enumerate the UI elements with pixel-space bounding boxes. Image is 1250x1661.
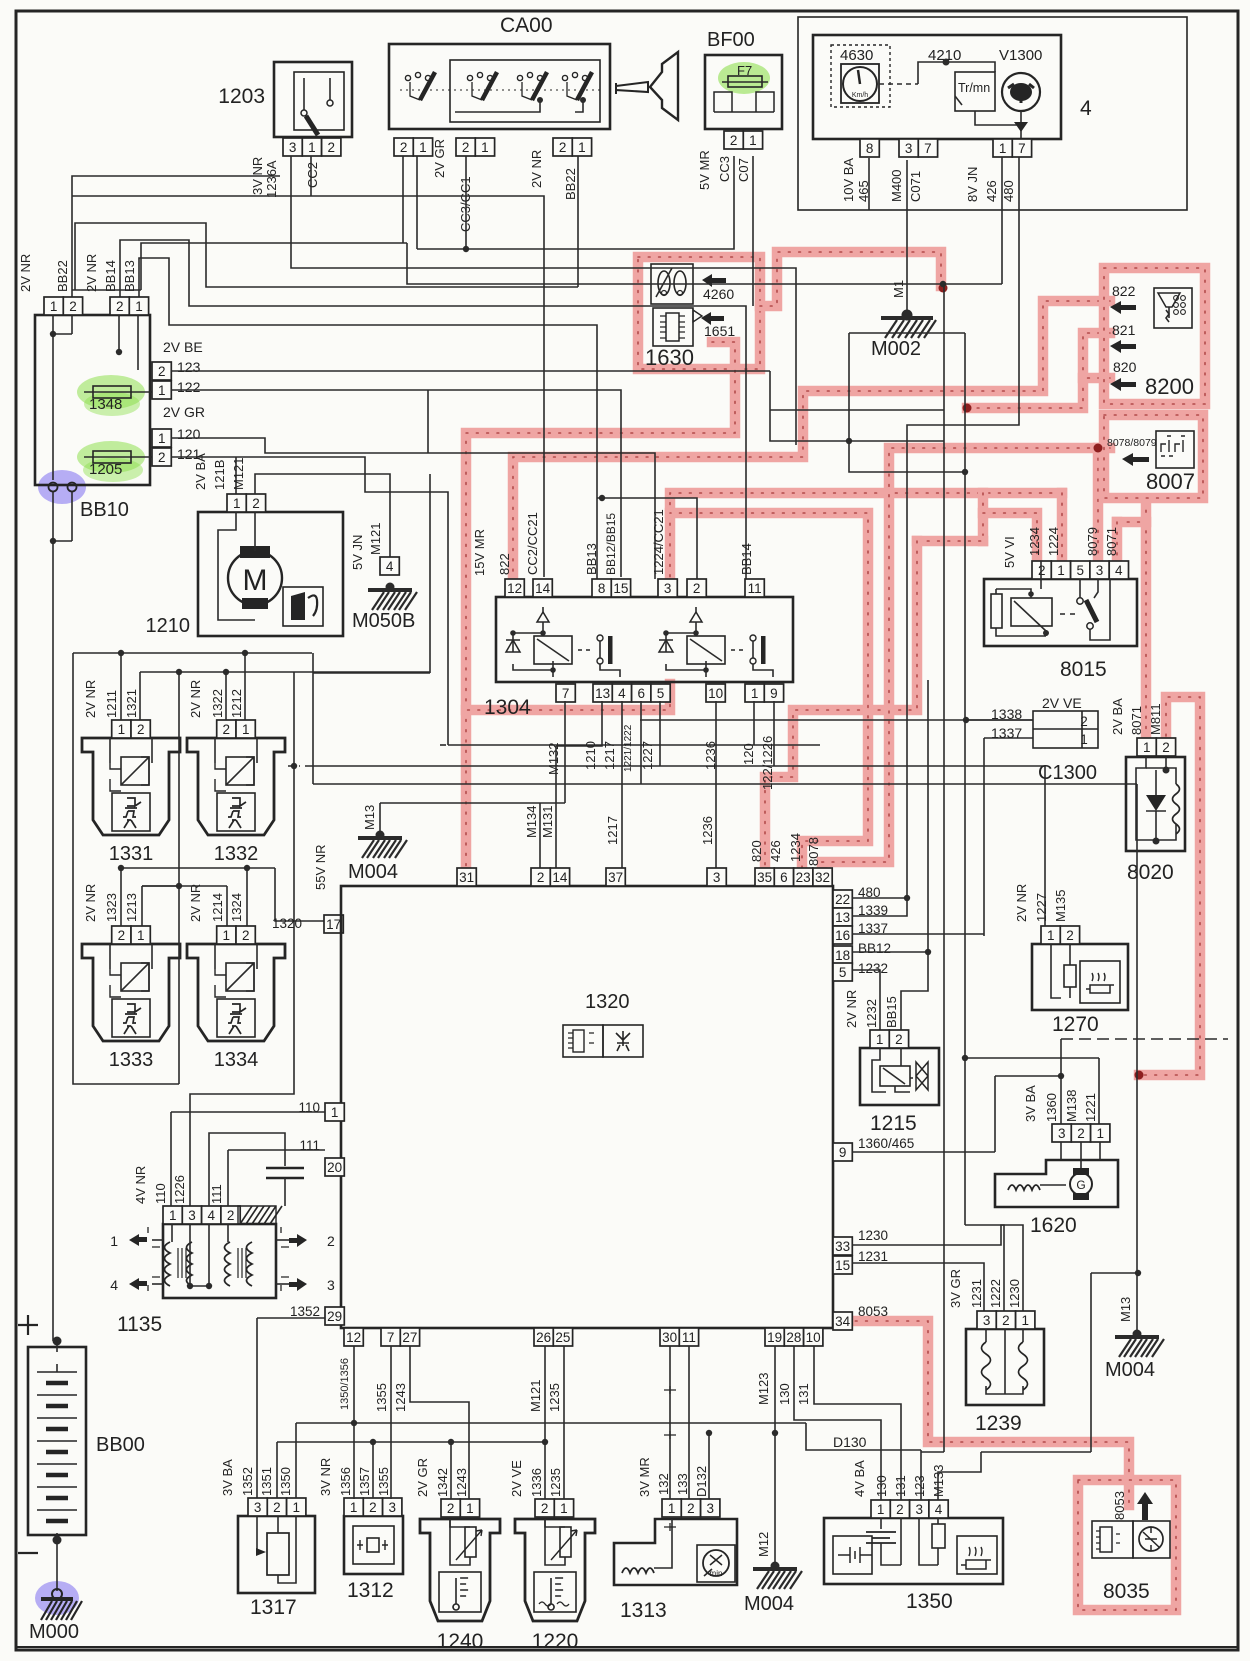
svg-text:132: 132 — [656, 1473, 671, 1495]
svg-text:1651: 1651 — [704, 323, 735, 339]
svg-text:2V GR: 2V GR — [415, 1458, 430, 1497]
svg-text:1: 1 — [419, 140, 427, 155]
svg-text:5V VI: 5V VI — [1002, 536, 1017, 568]
svg-text:2V NR: 2V NR — [844, 990, 859, 1028]
svg-text:BB15: BB15 — [884, 996, 899, 1028]
svg-text:4: 4 — [386, 559, 394, 574]
svg-text:8: 8 — [598, 581, 606, 596]
svg-text:20: 20 — [327, 1160, 342, 1175]
svg-text:1222: 1222 — [988, 1279, 1003, 1308]
svg-text:1212: 1212 — [229, 689, 244, 718]
svg-text:M400: M400 — [889, 169, 904, 202]
svg-text:3: 3 — [1058, 1126, 1066, 1141]
svg-text:1: 1 — [560, 1501, 568, 1516]
svg-text:820: 820 — [1113, 359, 1137, 375]
svg-text:3V MR: 3V MR — [637, 1457, 652, 1497]
svg-text:1312: 1312 — [347, 1579, 394, 1602]
svg-text:1: 1 — [1047, 928, 1055, 943]
svg-text:BF00: BF00 — [707, 29, 755, 51]
svg-text:3: 3 — [915, 1502, 923, 1517]
svg-text:M004: M004 — [348, 861, 398, 883]
svg-text:120: 120 — [741, 743, 756, 765]
svg-text:110: 110 — [153, 1183, 168, 1204]
svg-text:2: 2 — [242, 928, 250, 943]
svg-text:8071: 8071 — [1129, 706, 1144, 735]
svg-text:2: 2 — [137, 722, 145, 737]
svg-text:3: 3 — [706, 1501, 714, 1516]
svg-text:BB14: BB14 — [103, 260, 118, 292]
svg-text:1: 1 — [169, 1208, 177, 1223]
svg-text:BB12/BB15: BB12/BB15 — [604, 513, 618, 575]
svg-text:BB10: BB10 — [80, 499, 129, 521]
svg-text:1217: 1217 — [605, 816, 620, 845]
svg-text:3: 3 — [905, 141, 913, 156]
svg-text:C071: C071 — [908, 171, 923, 202]
svg-text:1: 1 — [137, 928, 145, 943]
svg-text:130: 130 — [777, 1383, 792, 1405]
svg-text:M: M — [243, 564, 268, 597]
svg-text:1360: 1360 — [1044, 1093, 1059, 1122]
svg-text:BB13: BB13 — [122, 260, 137, 292]
svg-text:4: 4 — [618, 686, 626, 701]
svg-text:1215: 1215 — [870, 1112, 917, 1135]
svg-text:1304: 1304 — [484, 696, 531, 719]
svg-text:1350/1356: 1350/1356 — [339, 1358, 351, 1410]
svg-text:2: 2 — [273, 1500, 281, 1515]
svg-text:1210: 1210 — [146, 615, 191, 637]
svg-text:1224: 1224 — [1046, 527, 1061, 556]
svg-text:4: 4 — [208, 1208, 216, 1223]
svg-text:1214: 1214 — [210, 893, 225, 922]
svg-text:2V BA: 2V BA — [1110, 698, 1125, 735]
svg-text:2: 2 — [1162, 740, 1170, 755]
svg-text:1: 1 — [481, 140, 489, 155]
svg-text:1: 1 — [999, 141, 1007, 156]
svg-text:Tr/mn: Tr/mn — [958, 81, 990, 95]
svg-text:1357: 1357 — [357, 1467, 372, 1496]
svg-text:4V BA: 4V BA — [852, 1460, 867, 1497]
svg-text:2V NR: 2V NR — [83, 680, 98, 718]
svg-text:1: 1 — [118, 722, 126, 737]
svg-text:2: 2 — [693, 581, 701, 596]
svg-text:2: 2 — [896, 1502, 904, 1517]
svg-text:32: 32 — [815, 870, 830, 885]
svg-text:1: 1 — [1080, 732, 1088, 747]
svg-text:1342: 1342 — [435, 1468, 450, 1497]
svg-text:BB14: BB14 — [739, 543, 754, 575]
svg-text:1333: 1333 — [109, 1049, 154, 1071]
svg-text:1227: 1227 — [1034, 893, 1049, 922]
svg-text:1320: 1320 — [585, 991, 630, 1013]
svg-text:820: 820 — [749, 840, 764, 862]
svg-text:3: 3 — [254, 1500, 262, 1515]
svg-text:2: 2 — [327, 140, 335, 155]
svg-text:2: 2 — [252, 496, 260, 511]
svg-text:M123: M123 — [756, 1372, 771, 1405]
svg-text:1227: 1227 — [640, 741, 655, 770]
svg-text:1334: 1334 — [214, 1049, 259, 1071]
svg-text:2: 2 — [1077, 1126, 1085, 1141]
svg-text:1321: 1321 — [124, 689, 139, 718]
svg-text:13: 13 — [835, 910, 850, 925]
svg-text:2: 2 — [541, 1501, 549, 1516]
svg-text:15: 15 — [835, 1258, 850, 1273]
svg-text:1221: 1221 — [1083, 1093, 1098, 1122]
svg-text:1: 1 — [1096, 1126, 1104, 1141]
svg-text:2: 2 — [69, 299, 77, 314]
svg-text:1: 1 — [668, 1501, 676, 1516]
svg-text:4: 4 — [1080, 97, 1092, 120]
svg-text:3: 3 — [388, 1500, 396, 1515]
svg-text:123: 123 — [912, 1475, 927, 1497]
svg-text:1313: 1313 — [620, 1599, 667, 1622]
svg-text:8035: 8035 — [1103, 1580, 1150, 1603]
svg-text:M811: M811 — [1148, 703, 1163, 735]
svg-text:1323: 1323 — [104, 893, 119, 922]
svg-text:1: 1 — [331, 1105, 339, 1120]
svg-text:M121: M121 — [368, 522, 383, 555]
svg-text:10: 10 — [806, 1330, 821, 1345]
svg-text:8071: 8071 — [1104, 527, 1119, 556]
svg-text:1213: 1213 — [124, 893, 139, 922]
svg-text:1220: 1220 — [532, 1630, 579, 1653]
svg-text:8079: 8079 — [1085, 527, 1100, 556]
svg-text:1230: 1230 — [1007, 1279, 1022, 1308]
svg-text:4: 4 — [110, 1277, 118, 1293]
svg-text:12: 12 — [507, 581, 522, 596]
svg-text:2: 2 — [687, 1501, 695, 1516]
svg-text:1360/465: 1360/465 — [858, 1136, 914, 1151]
svg-text:2: 2 — [730, 133, 738, 148]
svg-text:2: 2 — [559, 140, 567, 155]
svg-text:1356: 1356 — [338, 1467, 353, 1496]
svg-text:2: 2 — [327, 1233, 335, 1249]
svg-text:8078/8079: 8078/8079 — [1107, 437, 1157, 449]
svg-text:G: G — [1076, 1178, 1085, 1192]
svg-text:33: 33 — [835, 1239, 850, 1254]
svg-text:2: 2 — [537, 870, 545, 885]
svg-text:123: 123 — [177, 359, 201, 375]
svg-text:2: 2 — [1066, 928, 1074, 943]
svg-text:1243: 1243 — [454, 1468, 469, 1497]
svg-text:3: 3 — [327, 1277, 335, 1293]
svg-text:2: 2 — [158, 450, 166, 465]
svg-text:23: 23 — [796, 870, 811, 885]
svg-text:2: 2 — [223, 722, 231, 737]
svg-text:14: 14 — [535, 581, 551, 596]
svg-text:7: 7 — [387, 1330, 395, 1345]
svg-text:1224/CC21: 1224/CC21 — [651, 509, 666, 575]
svg-text:35: 35 — [757, 870, 772, 885]
svg-text:12: 12 — [346, 1330, 361, 1345]
svg-text:BB12: BB12 — [858, 941, 891, 956]
svg-text:2V VE: 2V VE — [1042, 695, 1082, 711]
svg-text:822: 822 — [497, 553, 512, 575]
svg-text:11: 11 — [748, 581, 762, 596]
svg-text:M004: M004 — [1105, 1359, 1155, 1381]
svg-text:8020: 8020 — [1127, 861, 1174, 884]
svg-text:7: 7 — [1018, 141, 1026, 156]
svg-text:1: 1 — [110, 1233, 118, 1249]
svg-text:122/1226: 122/1226 — [760, 736, 775, 790]
svg-text:1: 1 — [50, 299, 58, 314]
svg-text:2V GR: 2V GR — [432, 139, 447, 178]
svg-text:8078: 8078 — [806, 837, 821, 866]
svg-text:19: 19 — [767, 1330, 782, 1345]
svg-text:2: 2 — [462, 140, 470, 155]
svg-text:1630: 1630 — [645, 345, 694, 370]
svg-text:2: 2 — [369, 1500, 377, 1515]
svg-text:CC3: CC3 — [717, 156, 732, 182]
svg-text:8V JN: 8V JN — [965, 167, 980, 202]
svg-text:26: 26 — [536, 1330, 551, 1345]
svg-text:1221/1222: 1221/1222 — [623, 724, 634, 772]
svg-text:M121: M121 — [231, 457, 246, 490]
svg-text:2V BA: 2V BA — [193, 453, 208, 490]
svg-text:3: 3 — [1096, 563, 1104, 578]
svg-text:8015: 8015 — [1060, 658, 1107, 681]
svg-text:6: 6 — [637, 686, 645, 701]
svg-text:1: 1 — [876, 1032, 884, 1047]
svg-text:1135: 1135 — [117, 1313, 162, 1336]
svg-text:821: 821 — [1112, 322, 1136, 338]
svg-text:Km/h: Km/h — [852, 92, 868, 99]
svg-text:3: 3 — [289, 140, 297, 155]
svg-text:M13: M13 — [1118, 1297, 1133, 1322]
svg-text:426: 426 — [984, 180, 999, 202]
svg-text:1232: 1232 — [858, 961, 888, 976]
svg-text:C1300: C1300 — [1038, 762, 1097, 784]
svg-text:V1300: V1300 — [999, 47, 1042, 64]
svg-text:5: 5 — [657, 686, 665, 701]
svg-text:1351: 1351 — [259, 1467, 274, 1496]
svg-text:1243: 1243 — [393, 1383, 408, 1412]
svg-text:2: 2 — [1080, 714, 1088, 729]
svg-text:1324: 1324 — [229, 893, 244, 922]
svg-text:1336: 1336 — [529, 1468, 544, 1497]
svg-text:31: 31 — [459, 870, 474, 885]
svg-text:1355: 1355 — [376, 1467, 391, 1496]
svg-text:27: 27 — [402, 1330, 417, 1345]
svg-text:M132: M132 — [546, 742, 561, 775]
svg-text:22: 22 — [835, 892, 850, 907]
svg-text:1239: 1239 — [975, 1412, 1022, 1435]
svg-text:1203: 1203 — [218, 85, 265, 108]
svg-text:1: 1 — [877, 1502, 885, 1517]
svg-text:426: 426 — [768, 840, 783, 862]
svg-text:111: 111 — [209, 1184, 224, 1204]
svg-text:8: 8 — [866, 141, 874, 156]
svg-text:1236A: 1236A — [264, 160, 279, 198]
svg-text:CC2: CC2 — [305, 162, 320, 188]
svg-text:5: 5 — [839, 965, 847, 980]
svg-text:1317: 1317 — [250, 1596, 297, 1619]
svg-text:15: 15 — [613, 581, 628, 596]
svg-text:2: 2 — [116, 299, 124, 314]
svg-text:M004: M004 — [744, 1593, 794, 1615]
svg-text:25: 25 — [555, 1330, 570, 1345]
svg-text:M131: M131 — [540, 805, 555, 838]
svg-text:3: 3 — [983, 1313, 991, 1328]
svg-text:121B: 121B — [212, 460, 227, 490]
svg-text:2: 2 — [227, 1208, 235, 1223]
svg-text:3: 3 — [713, 870, 721, 885]
svg-text:122: 122 — [177, 379, 201, 395]
svg-text:55V NR: 55V NR — [313, 844, 328, 890]
svg-text:8007: 8007 — [1146, 469, 1195, 494]
svg-text:37: 37 — [608, 870, 623, 885]
svg-text:2V NR: 2V NR — [83, 884, 98, 922]
svg-text:1: 1 — [1057, 563, 1065, 578]
svg-text:1350: 1350 — [906, 1590, 953, 1613]
svg-text:1322: 1322 — [210, 689, 225, 718]
svg-text:M1: M1 — [891, 280, 906, 298]
svg-text:7: 7 — [924, 141, 932, 156]
svg-text:1230: 1230 — [858, 1228, 888, 1243]
svg-text:1: 1 — [466, 1501, 474, 1516]
svg-text:1: 1 — [1143, 740, 1151, 755]
svg-text:2: 2 — [447, 1501, 455, 1516]
svg-text:1: 1 — [751, 686, 759, 701]
svg-text:BB13: BB13 — [584, 543, 599, 575]
svg-text:CA00: CA00 — [500, 14, 553, 37]
svg-text:1331: 1331 — [109, 843, 154, 865]
svg-text:34: 34 — [835, 1314, 851, 1329]
svg-text:9: 9 — [839, 1145, 847, 1160]
svg-text:1236: 1236 — [700, 816, 715, 845]
svg-text:10: 10 — [708, 686, 723, 701]
svg-text:8200: 8200 — [1145, 374, 1194, 399]
svg-text:1270: 1270 — [1052, 1013, 1099, 1036]
svg-text:M121: M121 — [528, 1379, 543, 1412]
svg-text:2: 2 — [158, 364, 166, 379]
svg-text:120: 120 — [177, 426, 201, 442]
svg-text:C07: C07 — [736, 158, 751, 182]
svg-text:7: 7 — [562, 686, 570, 701]
svg-text:2V NR: 2V NR — [188, 680, 203, 718]
svg-text:822: 822 — [1112, 283, 1136, 299]
svg-text:4260: 4260 — [703, 286, 734, 302]
svg-text:1: 1 — [292, 1500, 300, 1515]
svg-text:1: 1 — [223, 928, 231, 943]
svg-text:8053: 8053 — [858, 1304, 888, 1319]
svg-text:8053: 8053 — [1112, 1491, 1127, 1520]
svg-text:2: 2 — [1002, 1313, 1010, 1328]
svg-text:2V NR: 2V NR — [18, 254, 33, 292]
svg-text:3: 3 — [188, 1208, 196, 1223]
svg-text:1620: 1620 — [1030, 1214, 1077, 1237]
svg-text:M134: M134 — [524, 805, 539, 838]
svg-text:1232: 1232 — [864, 999, 879, 1028]
svg-text:1217: 1217 — [602, 741, 617, 770]
svg-text:1350: 1350 — [278, 1467, 293, 1496]
svg-text:1234: 1234 — [788, 833, 803, 862]
svg-text:3V BA: 3V BA — [1023, 1085, 1038, 1122]
svg-text:14: 14 — [552, 870, 568, 885]
svg-text:480: 480 — [1001, 180, 1016, 202]
svg-text:2: 2 — [118, 928, 126, 943]
svg-text:M12: M12 — [756, 1532, 771, 1557]
svg-text:1231: 1231 — [858, 1249, 888, 1264]
svg-text:1: 1 — [1021, 1313, 1029, 1328]
svg-text:1332: 1332 — [214, 843, 259, 865]
svg-text:5V MR: 5V MR — [697, 150, 712, 190]
svg-text:3V BA: 3V BA — [220, 1459, 235, 1496]
svg-text:2V BE: 2V BE — [163, 339, 203, 355]
svg-text:2: 2 — [895, 1032, 903, 1047]
svg-text:1226: 1226 — [172, 1175, 187, 1204]
svg-text:1352: 1352 — [240, 1467, 255, 1496]
svg-text:1: 1 — [158, 431, 166, 446]
svg-text:1: 1 — [242, 722, 250, 737]
svg-text:13: 13 — [595, 686, 610, 701]
svg-text:M13: M13 — [362, 805, 377, 830]
svg-text:1: 1 — [308, 140, 316, 155]
svg-text:D130: D130 — [833, 1434, 867, 1450]
svg-text:2V VE: 2V VE — [509, 1460, 524, 1497]
svg-text:9: 9 — [770, 686, 778, 701]
svg-text:BB00: BB00 — [96, 1434, 145, 1456]
svg-text:2V NR: 2V NR — [529, 150, 544, 188]
svg-text:131: 131 — [796, 1383, 811, 1405]
svg-text:15V MR: 15V MR — [472, 529, 487, 576]
svg-text:18: 18 — [835, 948, 850, 963]
svg-text:1: 1 — [350, 1500, 358, 1515]
svg-text:10V BA: 10V BA — [841, 158, 856, 202]
svg-text:28: 28 — [786, 1330, 801, 1345]
svg-text:CC2/CC21: CC2/CC21 — [525, 512, 540, 575]
svg-text:4V NR: 4V NR — [133, 1166, 148, 1204]
svg-text:4: 4 — [1115, 563, 1123, 578]
svg-text:2V NR: 2V NR — [188, 884, 203, 922]
svg-text:1355: 1355 — [374, 1383, 389, 1412]
svg-text:1: 1 — [578, 140, 586, 155]
svg-text:M135: M135 — [1053, 889, 1068, 922]
svg-text:M138: M138 — [1064, 1089, 1079, 1122]
svg-text:29: 29 — [327, 1309, 342, 1324]
svg-text:2V GR: 2V GR — [163, 404, 205, 420]
svg-text:M000: M000 — [29, 1621, 79, 1643]
svg-text:6: 6 — [780, 870, 788, 885]
svg-text:1234: 1234 — [1027, 527, 1042, 556]
svg-text:30: 30 — [662, 1330, 677, 1345]
svg-text:5: 5 — [1076, 563, 1084, 578]
svg-text:133: 133 — [675, 1473, 690, 1495]
svg-text:1: 1 — [233, 496, 241, 511]
svg-text:5V JN: 5V JN — [350, 535, 365, 570]
svg-text:11: 11 — [682, 1330, 696, 1345]
svg-text:1: 1 — [135, 299, 143, 314]
svg-text:M050B: M050B — [352, 610, 415, 632]
svg-text:BB22: BB22 — [563, 168, 578, 200]
svg-text:16: 16 — [835, 928, 850, 943]
svg-text:3V GR: 3V GR — [948, 1269, 963, 1308]
svg-text:2: 2 — [400, 140, 408, 155]
svg-text:2V NR: 2V NR — [84, 254, 99, 292]
svg-text:3: 3 — [664, 581, 672, 596]
svg-text:3V NR: 3V NR — [318, 1458, 333, 1496]
svg-text:1231: 1231 — [969, 1279, 984, 1308]
svg-text:M002: M002 — [871, 338, 921, 360]
svg-text:1235: 1235 — [548, 1468, 563, 1497]
svg-text:17: 17 — [326, 917, 341, 932]
svg-text:1: 1 — [158, 383, 166, 398]
svg-text:1235: 1235 — [547, 1383, 562, 1412]
svg-text:4630: 4630 — [840, 47, 873, 64]
svg-text:1211: 1211 — [104, 690, 119, 718]
svg-text:2V NR: 2V NR — [1014, 884, 1029, 922]
svg-text:D132: D132 — [694, 1466, 709, 1497]
